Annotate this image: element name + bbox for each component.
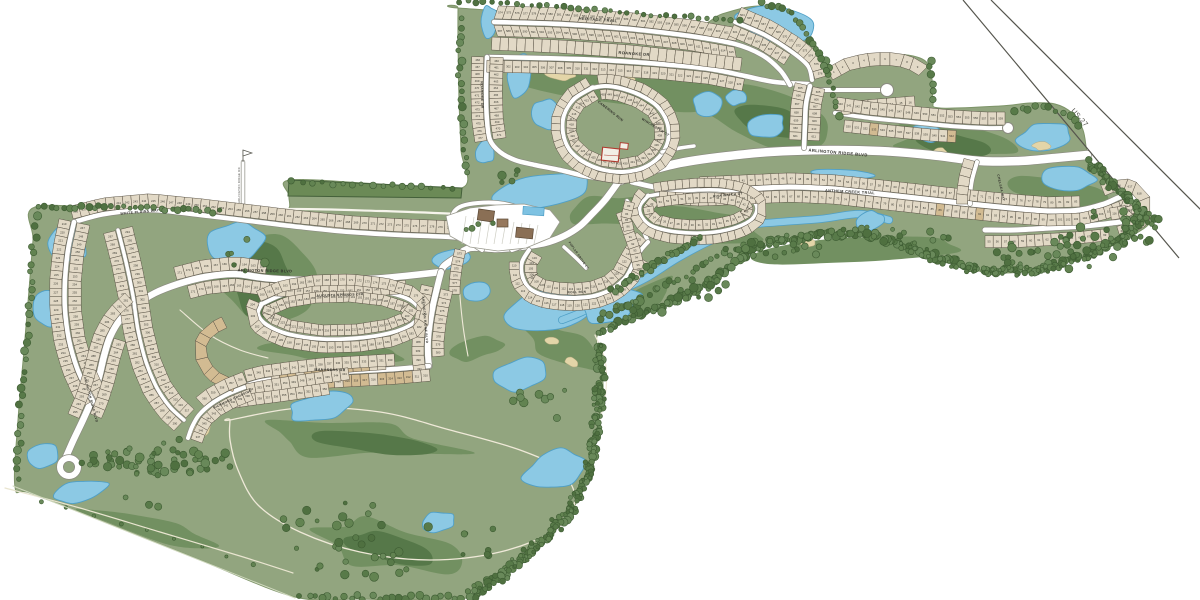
- svg-text:461: 461: [494, 66, 499, 70]
- svg-text:286: 286: [96, 337, 101, 341]
- svg-text:658: 658: [794, 110, 799, 114]
- svg-text:110: 110: [546, 285, 551, 289]
- svg-text:614: 614: [721, 49, 726, 53]
- svg-text:205: 205: [397, 318, 402, 322]
- svg-text:166: 166: [229, 283, 234, 287]
- svg-text:579: 579: [540, 12, 545, 16]
- svg-text:617: 617: [1128, 184, 1133, 188]
- svg-text:304: 304: [523, 65, 528, 69]
- svg-text:311: 311: [584, 67, 589, 71]
- svg-text:601: 601: [733, 30, 738, 34]
- svg-text:573: 573: [457, 252, 462, 256]
- svg-text:467: 467: [494, 107, 499, 111]
- svg-text:71: 71: [980, 195, 984, 199]
- svg-text:552: 552: [940, 114, 945, 118]
- svg-text:271: 271: [371, 222, 376, 226]
- svg-text:75: 75: [852, 198, 856, 202]
- svg-text:96: 96: [1018, 216, 1022, 220]
- svg-text:343: 343: [342, 372, 347, 376]
- svg-text:76: 76: [860, 199, 864, 203]
- svg-text:272: 272: [379, 222, 384, 226]
- svg-text:345: 345: [256, 371, 261, 375]
- svg-text:285: 285: [145, 385, 150, 389]
- svg-text:473: 473: [475, 107, 480, 111]
- svg-text:472: 472: [475, 100, 480, 104]
- svg-text:43: 43: [737, 200, 741, 204]
- svg-text:578: 578: [452, 288, 457, 292]
- svg-text:530: 530: [846, 124, 851, 128]
- svg-text:310: 310: [575, 67, 580, 71]
- svg-text:460: 460: [494, 59, 499, 63]
- svg-text:200: 200: [271, 335, 276, 339]
- svg-text:307: 307: [147, 339, 152, 343]
- svg-text:307: 307: [549, 66, 554, 70]
- svg-text:608: 608: [781, 56, 786, 60]
- svg-text:313: 313: [397, 376, 402, 380]
- svg-text:334: 334: [353, 360, 358, 364]
- svg-text:558: 558: [990, 117, 995, 121]
- svg-text:182: 182: [290, 299, 295, 303]
- svg-text:608: 608: [672, 41, 677, 45]
- svg-text:186: 186: [385, 340, 390, 344]
- svg-text:266: 266: [329, 218, 334, 222]
- svg-text:88: 88: [954, 210, 958, 214]
- svg-text:49: 49: [695, 196, 699, 200]
- svg-text:288: 288: [91, 354, 96, 358]
- svg-text:224: 224: [55, 265, 60, 269]
- svg-text:210: 210: [365, 326, 370, 330]
- svg-text:324: 324: [695, 75, 700, 79]
- svg-text:208: 208: [379, 324, 384, 328]
- svg-text:305: 305: [532, 65, 537, 69]
- svg-text:470: 470: [475, 86, 480, 90]
- svg-text:263: 263: [116, 342, 121, 346]
- svg-text:609: 609: [812, 119, 817, 123]
- svg-text:267: 267: [108, 234, 113, 238]
- svg-text:59: 59: [1021, 239, 1025, 243]
- svg-text:283: 283: [110, 312, 115, 316]
- svg-text:438: 438: [657, 134, 662, 138]
- svg-text:389: 389: [416, 349, 421, 353]
- svg-text:201: 201: [262, 330, 267, 334]
- svg-text:89: 89: [962, 211, 966, 215]
- svg-text:551: 551: [931, 113, 936, 117]
- svg-text:84: 84: [625, 212, 629, 216]
- svg-text:567: 567: [761, 22, 766, 26]
- svg-text:117: 117: [598, 282, 603, 286]
- svg-text:360: 360: [202, 396, 207, 400]
- svg-text:26: 26: [663, 219, 667, 223]
- svg-text:575: 575: [454, 267, 459, 271]
- svg-text:223: 223: [56, 256, 61, 260]
- svg-text:70: 70: [813, 195, 817, 199]
- svg-text:270: 270: [114, 259, 119, 263]
- svg-text:170: 170: [199, 287, 204, 291]
- svg-text:196: 196: [304, 343, 309, 347]
- svg-text:602: 602: [740, 33, 745, 37]
- svg-text:271: 271: [116, 267, 121, 271]
- svg-text:82: 82: [907, 204, 911, 208]
- svg-text:112: 112: [515, 282, 520, 286]
- svg-text:85: 85: [625, 218, 629, 222]
- svg-text:597: 597: [581, 32, 586, 36]
- svg-text:542: 542: [949, 134, 954, 138]
- svg-text:ARLINGTON RIDGE RD: ARLINGTON RIDGE RD: [237, 167, 241, 203]
- svg-text:266: 266: [109, 367, 114, 371]
- svg-text:554: 554: [956, 115, 961, 119]
- svg-text:49: 49: [806, 177, 810, 181]
- svg-text:272: 272: [118, 276, 123, 280]
- svg-text:352: 352: [266, 384, 271, 388]
- svg-text:611: 611: [811, 135, 816, 139]
- svg-text:347: 347: [308, 377, 313, 381]
- svg-text:434: 434: [647, 152, 652, 156]
- svg-text:578: 578: [532, 12, 537, 16]
- svg-text:116: 116: [1112, 211, 1117, 215]
- svg-text:315: 315: [173, 397, 178, 401]
- svg-text:123: 123: [600, 299, 605, 303]
- svg-text:80: 80: [1050, 200, 1054, 204]
- svg-text:343: 343: [274, 368, 279, 372]
- svg-text:248: 248: [177, 201, 182, 205]
- svg-text:222: 222: [57, 247, 62, 251]
- svg-text:309: 309: [566, 66, 571, 70]
- svg-text:607: 607: [775, 51, 780, 55]
- svg-text:280: 280: [130, 343, 135, 347]
- svg-text:150: 150: [365, 288, 370, 292]
- svg-text:54: 54: [659, 200, 663, 204]
- svg-text:28: 28: [676, 222, 680, 226]
- svg-text:273: 273: [120, 284, 125, 288]
- svg-text:227: 227: [53, 291, 58, 295]
- svg-text:306: 306: [145, 331, 150, 335]
- svg-text:235: 235: [63, 359, 68, 363]
- svg-text:655: 655: [798, 86, 803, 90]
- svg-text:189: 189: [361, 344, 366, 348]
- svg-text:262: 262: [295, 215, 300, 219]
- svg-text:20: 20: [650, 202, 654, 206]
- svg-text:226: 226: [53, 282, 58, 286]
- svg-text:289: 289: [89, 363, 94, 367]
- svg-text:197: 197: [296, 342, 301, 346]
- svg-text:278: 278: [127, 326, 132, 330]
- svg-text:448: 448: [614, 94, 619, 98]
- svg-text:542: 542: [855, 105, 860, 109]
- svg-text:185: 185: [310, 296, 315, 300]
- svg-text:43: 43: [758, 178, 762, 182]
- svg-text:185: 185: [393, 338, 398, 342]
- svg-text:35: 35: [726, 219, 730, 223]
- svg-text:328: 328: [728, 81, 733, 85]
- svg-text:160: 160: [260, 293, 265, 297]
- svg-text:164: 164: [245, 285, 250, 289]
- svg-text:163: 163: [253, 286, 258, 290]
- svg-text:56: 56: [862, 182, 866, 186]
- svg-text:606: 606: [655, 39, 660, 43]
- svg-text:415: 415: [576, 106, 581, 110]
- svg-text:657: 657: [795, 102, 800, 106]
- svg-text:306: 306: [541, 65, 546, 69]
- svg-text:68: 68: [797, 195, 801, 199]
- svg-text:590: 590: [632, 18, 637, 22]
- svg-text:295: 295: [73, 410, 78, 414]
- svg-text:588: 588: [506, 29, 511, 33]
- svg-text:33: 33: [712, 222, 716, 226]
- svg-text:345: 345: [202, 422, 207, 426]
- svg-text:286: 286: [149, 393, 154, 397]
- svg-text:388: 388: [416, 340, 421, 344]
- svg-text:557: 557: [982, 116, 987, 120]
- svg-text:344: 344: [206, 416, 211, 420]
- svg-text:258: 258: [73, 314, 78, 318]
- svg-text:228: 228: [53, 299, 58, 303]
- svg-text:30: 30: [691, 223, 695, 227]
- svg-text:105: 105: [528, 267, 533, 271]
- svg-text:97: 97: [1026, 217, 1030, 221]
- svg-text:54: 54: [846, 180, 850, 184]
- svg-text:220: 220: [298, 325, 303, 329]
- svg-text:540: 540: [838, 102, 843, 106]
- svg-text:166: 166: [307, 279, 312, 283]
- svg-text:170: 170: [340, 278, 345, 282]
- svg-text:378: 378: [436, 335, 441, 339]
- svg-text:204: 204: [250, 303, 255, 307]
- svg-text:83: 83: [915, 205, 919, 209]
- svg-text:543: 543: [864, 106, 869, 110]
- svg-text:325: 325: [703, 76, 708, 80]
- svg-text:254: 254: [228, 207, 233, 211]
- svg-text:238: 238: [73, 384, 78, 388]
- svg-text:576: 576: [818, 72, 823, 76]
- svg-text:376: 376: [438, 317, 443, 321]
- svg-text:609: 609: [680, 42, 685, 46]
- svg-text:114: 114: [528, 295, 533, 299]
- svg-text:242: 242: [125, 200, 130, 204]
- svg-text:314: 314: [388, 377, 393, 381]
- svg-text:180: 180: [279, 303, 284, 307]
- svg-text:610: 610: [812, 127, 817, 131]
- svg-text:471: 471: [497, 133, 502, 137]
- svg-text:52: 52: [673, 198, 677, 202]
- svg-text:605: 605: [816, 90, 821, 94]
- svg-text:252: 252: [74, 266, 79, 270]
- svg-text:232: 232: [57, 334, 62, 338]
- svg-text:113: 113: [521, 289, 526, 293]
- svg-text:559: 559: [998, 117, 1003, 121]
- svg-text:598: 598: [589, 33, 594, 37]
- svg-text:267: 267: [107, 376, 112, 380]
- svg-text:295: 295: [127, 238, 132, 242]
- svg-text:258: 258: [262, 211, 267, 215]
- svg-text:294: 294: [76, 402, 81, 406]
- svg-text:59: 59: [886, 184, 890, 188]
- svg-text:577: 577: [523, 11, 528, 15]
- svg-text:283: 283: [138, 369, 143, 373]
- svg-text:169: 169: [206, 286, 211, 290]
- svg-text:124: 124: [607, 297, 612, 301]
- svg-text:270: 270: [362, 221, 367, 225]
- svg-text:309: 309: [152, 355, 157, 359]
- svg-text:327: 327: [720, 79, 725, 83]
- svg-text:604: 604: [755, 40, 760, 44]
- svg-text:537: 537: [906, 131, 911, 135]
- svg-text:600: 600: [606, 34, 611, 38]
- svg-text:538: 538: [915, 132, 920, 136]
- svg-text:42: 42: [743, 203, 747, 207]
- svg-text:64: 64: [925, 189, 929, 193]
- svg-text:297: 297: [131, 255, 136, 259]
- svg-text:615: 615: [729, 50, 734, 54]
- svg-text:253: 253: [73, 275, 78, 279]
- svg-text:420: 420: [570, 134, 575, 138]
- svg-text:168: 168: [214, 285, 219, 289]
- svg-text:203: 203: [251, 314, 256, 318]
- svg-text:532: 532: [863, 126, 868, 130]
- svg-text:302: 302: [140, 298, 145, 302]
- svg-text:294: 294: [125, 230, 130, 234]
- svg-text:98: 98: [1034, 217, 1038, 221]
- svg-text:250: 250: [75, 250, 80, 254]
- svg-text:55: 55: [854, 181, 858, 185]
- svg-text:332: 332: [370, 359, 375, 363]
- svg-text:168: 168: [204, 264, 209, 268]
- svg-text:276: 276: [413, 224, 418, 228]
- svg-text:202: 202: [255, 324, 260, 328]
- svg-text:34: 34: [718, 221, 722, 225]
- svg-text:592: 592: [539, 30, 544, 34]
- svg-text:268: 268: [345, 220, 350, 224]
- svg-text:281: 281: [123, 298, 128, 302]
- svg-text:36: 36: [732, 218, 736, 222]
- svg-text:350: 350: [283, 381, 288, 385]
- svg-text:234: 234: [61, 351, 66, 355]
- svg-text:77: 77: [867, 200, 871, 204]
- svg-text:602: 602: [622, 35, 627, 39]
- svg-text:317: 317: [362, 378, 367, 382]
- svg-text:199: 199: [278, 338, 283, 342]
- svg-text:322: 322: [678, 73, 683, 77]
- svg-text:55: 55: [988, 240, 992, 244]
- svg-text:112: 112: [561, 287, 566, 291]
- svg-text:284: 284: [105, 320, 110, 324]
- svg-text:183: 183: [297, 298, 302, 302]
- svg-text:116: 116: [591, 285, 596, 289]
- svg-text:355: 355: [282, 393, 287, 397]
- svg-text:535: 535: [889, 129, 894, 133]
- svg-text:83: 83: [627, 204, 631, 208]
- svg-text:287: 287: [94, 346, 99, 350]
- svg-text:304: 304: [143, 315, 148, 319]
- svg-text:254: 254: [72, 283, 77, 287]
- svg-text:247: 247: [80, 226, 85, 230]
- svg-text:545: 545: [880, 108, 885, 112]
- svg-text:374: 374: [441, 301, 446, 305]
- svg-text:91: 91: [978, 212, 982, 216]
- svg-text:103: 103: [532, 256, 537, 260]
- svg-text:265: 265: [320, 218, 325, 222]
- svg-text:313: 313: [164, 385, 169, 389]
- svg-text:418: 418: [569, 123, 574, 127]
- svg-text:175: 175: [381, 282, 386, 286]
- svg-text:380: 380: [436, 350, 441, 354]
- svg-text:31: 31: [698, 223, 702, 227]
- svg-text:312: 312: [161, 378, 166, 382]
- svg-text:214: 214: [339, 328, 344, 332]
- svg-text:216: 216: [325, 328, 330, 332]
- svg-text:656: 656: [796, 93, 801, 97]
- svg-text:604: 604: [639, 37, 644, 41]
- svg-text:273: 273: [387, 223, 392, 227]
- svg-text:101: 101: [1058, 218, 1063, 222]
- svg-text:81: 81: [899, 203, 903, 207]
- svg-text:95: 95: [1010, 215, 1014, 219]
- svg-text:104: 104: [1082, 216, 1087, 220]
- svg-text:323: 323: [686, 74, 691, 78]
- svg-text:220: 220: [60, 230, 65, 234]
- svg-text:575: 575: [506, 11, 511, 15]
- svg-text:221: 221: [58, 239, 63, 243]
- svg-text:598: 598: [699, 26, 704, 30]
- svg-text:251: 251: [74, 258, 79, 262]
- svg-text:564: 564: [740, 13, 745, 17]
- svg-text:533: 533: [872, 127, 877, 131]
- svg-text:555: 555: [965, 116, 970, 120]
- svg-text:167: 167: [316, 279, 321, 283]
- svg-text:ROLL RUN: ROLL RUN: [568, 290, 587, 295]
- svg-text:85: 85: [931, 207, 935, 211]
- svg-text:337: 337: [327, 362, 332, 366]
- svg-text:574: 574: [498, 11, 503, 15]
- svg-text:95: 95: [637, 263, 641, 267]
- svg-text:86: 86: [627, 225, 631, 229]
- svg-text:431: 431: [630, 160, 635, 164]
- svg-text:37: 37: [738, 215, 742, 219]
- svg-text:469: 469: [495, 120, 500, 124]
- svg-text:462: 462: [494, 73, 499, 77]
- svg-text:359: 359: [211, 390, 216, 394]
- svg-text:382: 382: [424, 288, 429, 292]
- svg-text:375: 375: [440, 309, 445, 313]
- svg-text:102: 102: [1066, 218, 1071, 222]
- svg-text:94: 94: [1002, 215, 1006, 219]
- svg-text:351: 351: [314, 388, 319, 392]
- svg-text:228: 228: [266, 308, 271, 312]
- svg-text:546: 546: [889, 109, 894, 113]
- svg-text:312: 312: [406, 375, 411, 379]
- svg-text:83: 83: [1074, 200, 1078, 204]
- svg-text:351: 351: [274, 382, 279, 386]
- svg-text:544: 544: [872, 107, 877, 111]
- svg-text:268: 268: [110, 243, 115, 247]
- svg-text:534: 534: [880, 128, 885, 132]
- svg-text:269: 269: [102, 393, 107, 397]
- svg-text:53: 53: [666, 199, 670, 203]
- svg-text:576: 576: [515, 11, 520, 15]
- svg-text:314: 314: [609, 68, 614, 72]
- svg-text:441: 441: [653, 116, 658, 120]
- svg-text:589: 589: [514, 29, 519, 33]
- svg-text:605: 605: [762, 43, 767, 47]
- svg-text:219: 219: [62, 222, 67, 226]
- svg-text:358: 358: [220, 385, 225, 389]
- svg-text:601: 601: [614, 35, 619, 39]
- svg-text:550: 550: [923, 112, 928, 116]
- svg-text:591: 591: [531, 30, 536, 34]
- svg-text:331: 331: [379, 359, 384, 363]
- svg-text:164: 164: [292, 282, 297, 286]
- svg-text:310: 310: [423, 374, 428, 378]
- svg-text:87: 87: [946, 209, 950, 213]
